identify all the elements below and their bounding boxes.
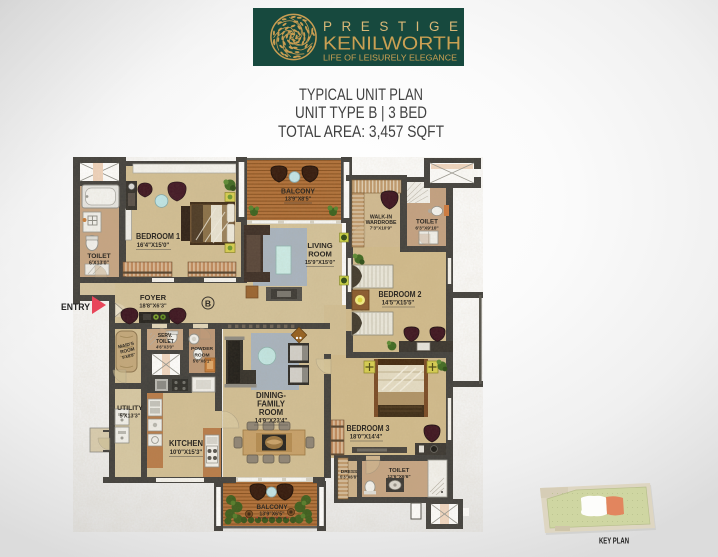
svg-text:4'6"X3'0": 4'6"X3'0" [156, 345, 174, 350]
svg-text:BEDROOM 1: BEDROOM 1 [136, 232, 180, 241]
svg-text:KENILWORTH: KENILWORTH [323, 33, 461, 54]
svg-text:6'X13'0": 6'X13'0" [89, 261, 109, 267]
svg-text:ENTRY: ENTRY [61, 302, 91, 313]
svg-text:UTILITY: UTILITY [117, 405, 143, 412]
svg-text:7'3"X10'9": 7'3"X10'9" [370, 226, 392, 231]
svg-text:16'4"X15'0": 16'4"X15'0" [137, 243, 170, 249]
svg-text:BEDROOM 2: BEDROOM 2 [379, 290, 422, 299]
svg-text:TOILET: TOILET [87, 253, 110, 260]
svg-text:ROOM: ROOM [308, 250, 332, 259]
svg-text:18'8"X6'3": 18'8"X6'3" [139, 304, 167, 310]
svg-text:10'0"X15'3": 10'0"X15'3" [170, 450, 203, 456]
svg-text:BEDROOM 3: BEDROOM 3 [347, 424, 390, 433]
svg-text:KEY PLAN: KEY PLAN [599, 536, 629, 546]
svg-text:LIFE OF LEISURELY ELEGANCE: LIFE OF LEISURELY ELEGANCE [323, 54, 458, 63]
svg-text:TOILET: TOILET [416, 219, 438, 226]
svg-text:5'3"X6'8": 5'3"X6'8" [340, 475, 358, 480]
svg-text:13'9"X8'5": 13'9"X8'5" [285, 197, 312, 203]
svg-text:5'X13'3": 5'X13'3" [120, 414, 141, 420]
svg-text:BALCONY: BALCONY [281, 187, 315, 196]
svg-text:UNIT TYPE B | 3 BED: UNIT TYPE B | 3 BED [295, 104, 427, 122]
svg-text:14'5"X15'5": 14'5"X15'5" [382, 301, 415, 307]
svg-text:B: B [205, 298, 211, 308]
svg-text:TOILET: TOILET [389, 468, 410, 474]
svg-text:TOTAL AREA: 3,457 SQFT: TOTAL AREA: 3,457 SQFT [278, 123, 444, 141]
svg-text:BALCONY: BALCONY [257, 504, 288, 511]
svg-text:12'6"X6'6": 12'6"X6'6" [387, 474, 410, 480]
svg-text:POWDER: POWDER [191, 346, 213, 352]
svg-text:13'9"X6'5": 13'9"X6'5" [259, 512, 285, 518]
svg-text:6'3"X9'10": 6'3"X9'10" [415, 226, 438, 232]
svg-text:14'9"X23'4": 14'9"X23'4" [255, 419, 288, 425]
svg-text:KITCHEN: KITCHEN [169, 439, 203, 448]
svg-text:5'6"X6'1": 5'6"X6'1" [193, 359, 212, 364]
svg-text:15'9"X15'0": 15'9"X15'0" [305, 260, 336, 266]
svg-text:18'0"X14'4": 18'0"X14'4" [350, 435, 383, 441]
svg-text:FOYER: FOYER [140, 293, 167, 302]
svg-text:TYPICAL UNIT PLAN: TYPICAL UNIT PLAN [299, 86, 423, 104]
svg-text:ROOM: ROOM [259, 408, 283, 417]
